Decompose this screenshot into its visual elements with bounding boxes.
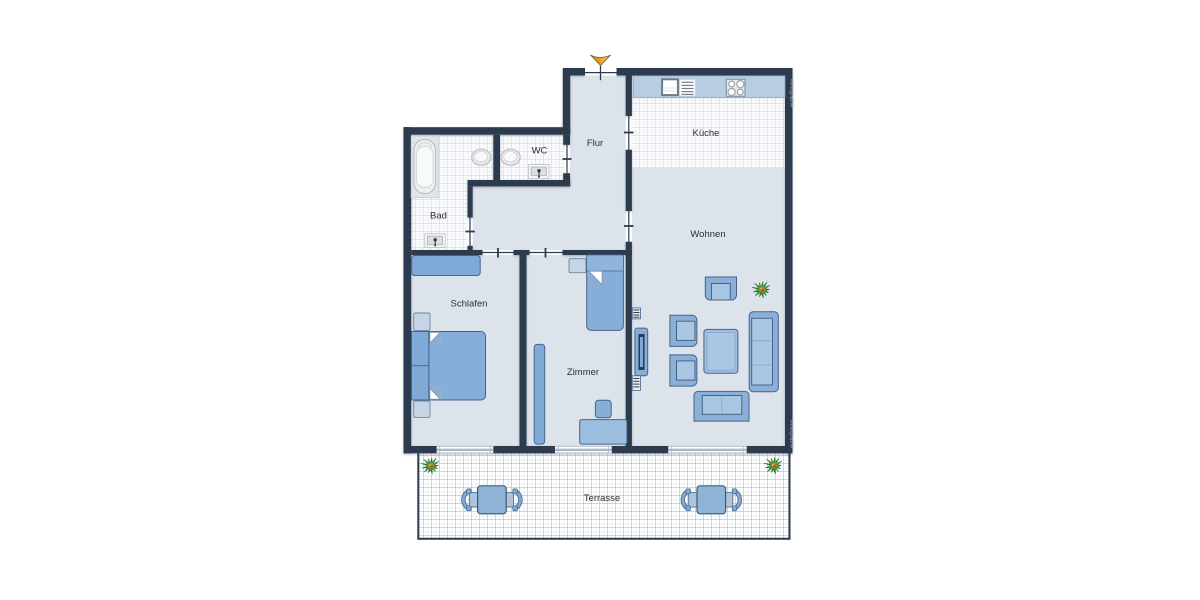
svg-text:Immographik: Immographik: [789, 79, 795, 108]
svg-text:WC: WC: [532, 146, 548, 157]
svg-text:Immographik: Immographik: [789, 420, 795, 449]
svg-text:Zimmer: Zimmer: [567, 367, 599, 378]
svg-text:Bad: Bad: [430, 211, 447, 222]
svg-text:Wohnen: Wohnen: [690, 229, 725, 240]
svg-text:Schlafen: Schlafen: [451, 299, 488, 310]
svg-text:Flur: Flur: [587, 138, 603, 149]
svg-text:Küche: Küche: [693, 128, 720, 139]
svg-text:Terrasse: Terrasse: [584, 493, 620, 504]
